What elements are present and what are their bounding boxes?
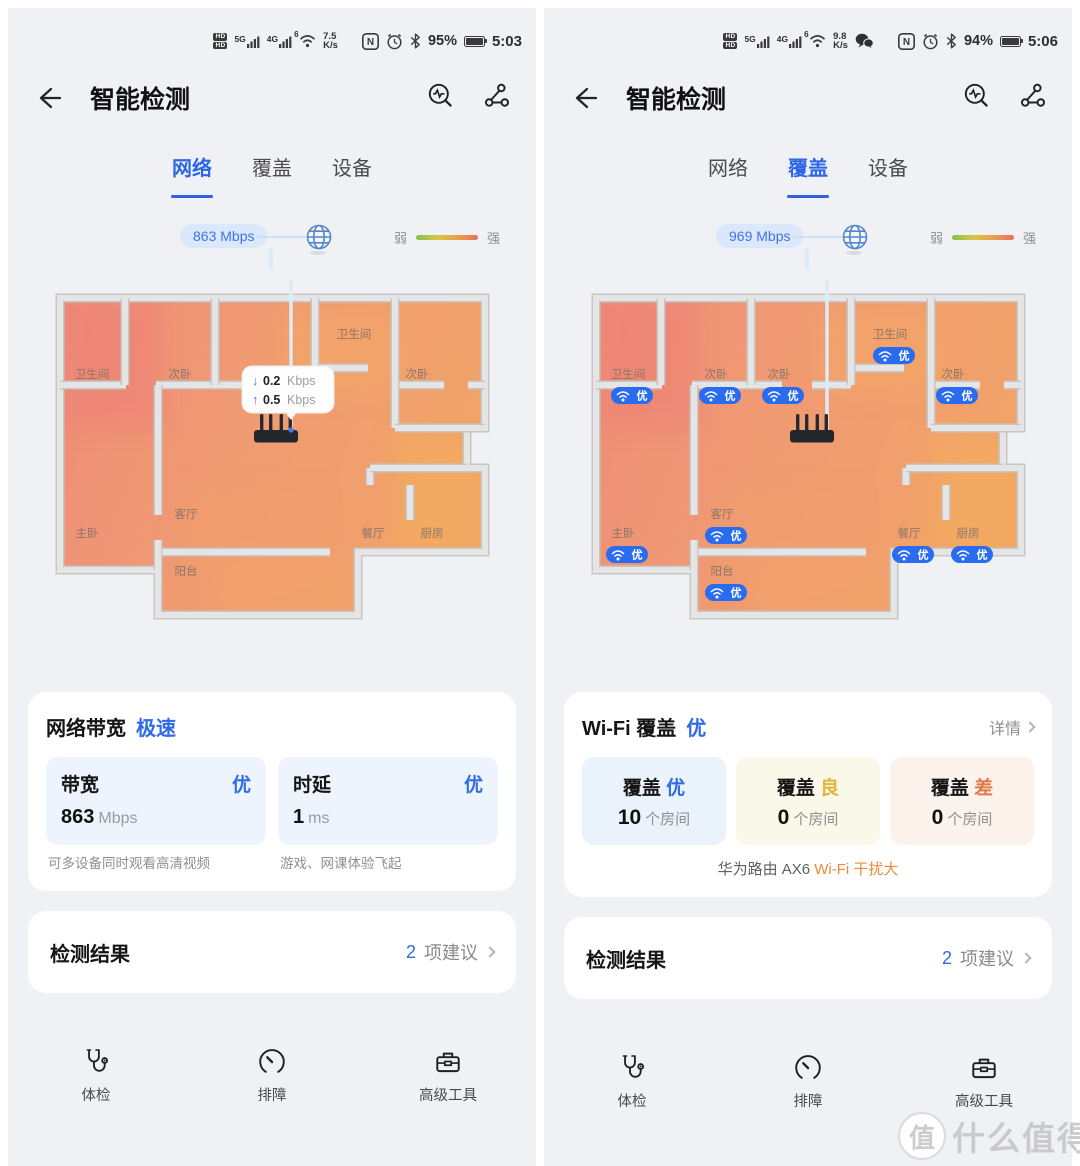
title-bar: 智能检测 [544,72,1072,124]
system-status-group: N95%5:03 [362,33,522,50]
coverage-badge: 优 [705,584,747,601]
nav-label: 高级工具 [955,1090,1013,1111]
bucket-poor: 覆盖 差 0个房间 [890,757,1034,845]
svg-text:优: 优 [899,349,910,363]
coverage-badge: 优 [762,387,804,404]
page-title: 智能检测 [90,80,427,116]
room-label: 卫生间 [873,327,908,341]
tab-2[interactable]: 设备 [332,148,372,206]
nav-toolbox[interactable]: 高级工具 [360,1047,536,1105]
throughput-tooltip: ↓0.2Kbps↑0.5Kbps [242,366,334,420]
uplink-speed-pill: 863 Mbps [180,224,267,248]
nav-label: 体检 [618,1090,647,1111]
svg-text:Kbps: Kbps [287,374,316,388]
tab-bar: 网络覆盖设备 [8,148,536,206]
back-button[interactable] [570,83,600,113]
svg-text:优: 优 [962,389,973,403]
phone-screen-network: HDHD5G4G67.5K/sN95%5:03 智能检测 网络覆盖设备 863 … [8,8,536,1166]
phone-screen-coverage: HDHD5G4G69.8K/sN94%5:06 智能检测 网络覆盖设备 969 … [544,8,1072,1166]
signal-strength-legend: 弱 强 [930,228,1036,247]
tab-bar: 网络覆盖设备 [544,148,1072,206]
metric-unit: ms [308,810,329,827]
title-bar: 智能检测 [8,72,536,124]
tab-1[interactable]: 覆盖 [252,148,292,206]
bucket-excellent: 覆盖 优 10个房间 [582,757,726,845]
room-label: 卫生间 [611,367,646,381]
bandwidth-card-title: 网络带宽 [46,712,126,741]
nav-stethoscope[interactable]: 体检 [544,1053,720,1111]
chevron-right-icon [484,946,495,957]
bandwidth-card: 网络带宽 极速 带宽 优 863Mbps 可多设备同时观看高清视频 [28,692,516,891]
coverage-badge: 优 [606,546,648,563]
room-label: 阳台 [711,564,734,578]
nav-toolbox[interactable]: 高级工具 [896,1053,1072,1111]
svg-text:0.2: 0.2 [263,374,280,388]
nav-gauge[interactable]: 排障 [720,1053,896,1111]
volte-hd-icons: HDHD [213,33,227,49]
uplink-line [792,236,842,238]
bottom-nav: 体检排障高级工具 [8,1047,536,1105]
uplink-connector: 863 Mbps 弱 强 [8,222,536,268]
chevron-right-icon [1020,952,1031,963]
room-label: 餐厅 [362,526,385,540]
nfc-icon: N [898,33,915,50]
coverage-badge: 优 [699,387,741,404]
metric-unit: Mbps [98,810,137,827]
wifi-icon: 6 [809,34,826,48]
back-arrow-icon [41,89,60,107]
svg-text:N: N [367,37,374,48]
back-button[interactable] [34,83,64,113]
alarm-icon [386,33,403,50]
svg-text:0.5: 0.5 [263,393,280,407]
heatmap-fill [566,280,1050,632]
internet-globe-icon [840,222,870,257]
internet-globe-icon [304,222,334,257]
metric-value: 1 [293,806,304,828]
chevron-right-icon [1024,721,1035,732]
wifi-coverage-card: Wi-Fi 覆盖 优 详情 覆盖 优 10个房间 覆盖 良 0个房间 覆盖 差 … [564,692,1052,897]
signal-strength-legend: 弱 强 [394,228,500,247]
wechat-icon [855,33,874,49]
topology-share-icon[interactable] [484,83,510,114]
suggestion-text: 项建议 [424,939,478,965]
bluetooth-icon [946,33,957,49]
room-label: 主卧 [612,527,635,540]
page-title: 智能检测 [626,80,963,116]
nav-label: 排障 [258,1084,287,1105]
battery-percent: 95% [428,33,457,49]
svg-text:↓: ↓ [252,373,259,388]
legend-weak-label: 弱 [394,228,407,247]
room-label: 客厅 [711,507,734,521]
gauge-icon [793,1053,823,1083]
signal-4g-icon: 4G [777,35,802,48]
signal-4g-icon: 4G [267,35,292,48]
battery-percent: 94% [964,33,993,49]
suggestion-count: 2 [942,948,952,969]
net-speed: 9.8K/s [833,32,848,51]
room-label: 次卧 [768,367,791,381]
bucket-good: 覆盖 良 0个房间 [736,757,880,845]
clock: 5:06 [1028,33,1058,50]
uplink-connector: 969 Mbps 弱 强 [544,222,1072,268]
room-label: 厨房 [957,527,980,540]
topology-share-icon[interactable] [1020,83,1046,114]
suggestion-count: 2 [406,942,416,963]
net-speed: 7.5K/s [323,32,338,51]
coverage-badge: 优 [611,387,653,404]
coverage-badge: 优 [936,387,978,404]
coverage-badge: 优 [705,527,747,544]
result-label: 检测结果 [50,938,130,967]
back-arrow-icon [577,89,596,107]
uplink-line [256,236,306,238]
legend-gradient-bar [952,235,1014,240]
result-row[interactable]: 检测结果 2 项建议 [28,911,516,993]
room-label: 餐厅 [898,526,921,540]
bandwidth-card-grade: 极速 [136,712,176,741]
status-bar: HDHD5G4G67.5K/sN95%5:03 [8,24,536,58]
nfc-icon: N [362,33,379,50]
bottom-nav: 体检排障高级工具 [544,1053,1072,1111]
metric-value: 863 [61,806,94,828]
metric-caption: 游戏、网课体验飞起 [278,854,498,873]
svg-text:↑: ↑ [252,392,259,407]
battery-icon [1000,36,1021,47]
svg-text:优: 优 [637,389,648,403]
metric-latency: 时延 优 1ms 游戏、网课体验飞起 [278,757,498,873]
diagnose-search-icon[interactable] [963,82,990,114]
tab-0[interactable]: 网络 [172,148,212,206]
room-label: 次卧 [942,367,965,381]
floorplan-heatmap[interactable]: 卫生间优次卧优次卧优卫生间优次卧优主卧优客厅优阳台优餐厅优厨房优 [566,280,1050,632]
diagnose-search-icon[interactable] [427,82,454,114]
tab-1[interactable]: 覆盖 [788,148,828,206]
gauge-icon [257,1047,287,1077]
svg-text:N: N [903,37,910,48]
interference-note: 华为路由 AX6 Wi-Fi 干扰大 [582,858,1034,879]
svg-text:优: 优 [731,586,742,600]
coverage-card-grade: 优 [686,712,706,741]
stethoscope-icon [617,1053,647,1083]
bluetooth-icon [410,33,421,49]
room-label: 卫生间 [75,367,110,381]
metric-label: 时延 [293,770,331,797]
result-label: 检测结果 [586,944,666,973]
legend-weak-label: 弱 [930,228,943,247]
metric-label: 带宽 [61,770,99,797]
svg-text:优: 优 [632,548,643,562]
wifi-icon: 6 [299,34,316,48]
clock: 5:03 [492,33,522,50]
tab-2[interactable]: 设备 [868,148,908,206]
room-label: 卫生间 [337,327,372,341]
room-label: 客厅 [175,507,198,521]
suggestion-text: 项建议 [960,945,1014,971]
nav-label: 排障 [794,1090,823,1111]
svg-text:优: 优 [977,548,988,562]
metric-grade: 优 [464,770,483,797]
detail-label: 详情 [989,715,1021,739]
legend-strong-label: 强 [1023,228,1036,247]
svg-text:优: 优 [725,389,736,403]
room-label: 阳台 [175,564,198,578]
nav-label: 体检 [82,1084,111,1105]
coverage-badge: 优 [873,347,915,364]
floorplan-heatmap[interactable]: 卫生间次卧卫生间次卧主卧客厅阳台餐厅厨房↓0.2Kbps↑0.5Kbps [30,280,514,632]
legend-gradient-bar [416,235,478,240]
legend-strong-label: 强 [487,228,500,247]
stethoscope-icon [81,1047,111,1077]
network-status-group: HDHD5G4G69.8K/s [723,32,873,51]
svg-text:Kbps: Kbps [287,393,316,407]
volte-hd-icons: HDHD [723,33,737,49]
heatmap-fill [30,280,514,632]
room-label: 主卧 [76,527,99,540]
network-status-group: HDHD5G4G67.5K/s [213,32,337,51]
signal-5g-icon: 5G [234,35,259,48]
room-label: 厨房 [421,527,444,540]
svg-text:优: 优 [918,548,929,562]
coverage-card-title: Wi-Fi 覆盖 [582,712,676,741]
router-drop-line [805,248,809,270]
router-drop-line [269,248,273,270]
link-dot [288,427,293,432]
metric-grade: 优 [232,770,251,797]
uplink-speed-pill: 969 Mbps [716,224,803,248]
toolbox-icon [969,1053,999,1083]
result-row[interactable]: 检测结果 2 项建议 [564,917,1052,999]
toolbox-icon [433,1047,463,1077]
room-label: 次卧 [406,367,429,381]
nav-stethoscope[interactable]: 体检 [8,1047,184,1105]
coverage-badge: 优 [892,546,934,563]
room-label: 次卧 [169,367,192,381]
tab-0[interactable]: 网络 [708,148,748,206]
svg-text:优: 优 [788,389,799,403]
signal-5g-icon: 5G [744,35,769,48]
system-status-group: N94%5:06 [898,33,1058,50]
nav-label: 高级工具 [419,1084,477,1105]
coverage-badge: 优 [951,546,993,563]
coverage-buckets: 覆盖 优 10个房间 覆盖 良 0个房间 覆盖 差 0个房间 [582,757,1034,845]
metric-caption: 可多设备同时观看高清视频 [46,854,266,873]
svg-text:优: 优 [731,529,742,543]
nav-gauge[interactable]: 排障 [184,1047,360,1105]
status-bar: HDHD5G4G69.8K/sN94%5:06 [544,24,1072,58]
alarm-icon [922,33,939,50]
battery-icon [464,36,485,47]
detail-link[interactable]: 详情 [989,715,1034,739]
room-label: 次卧 [705,367,728,381]
metric-bandwidth: 带宽 优 863Mbps 可多设备同时观看高清视频 [46,757,266,873]
